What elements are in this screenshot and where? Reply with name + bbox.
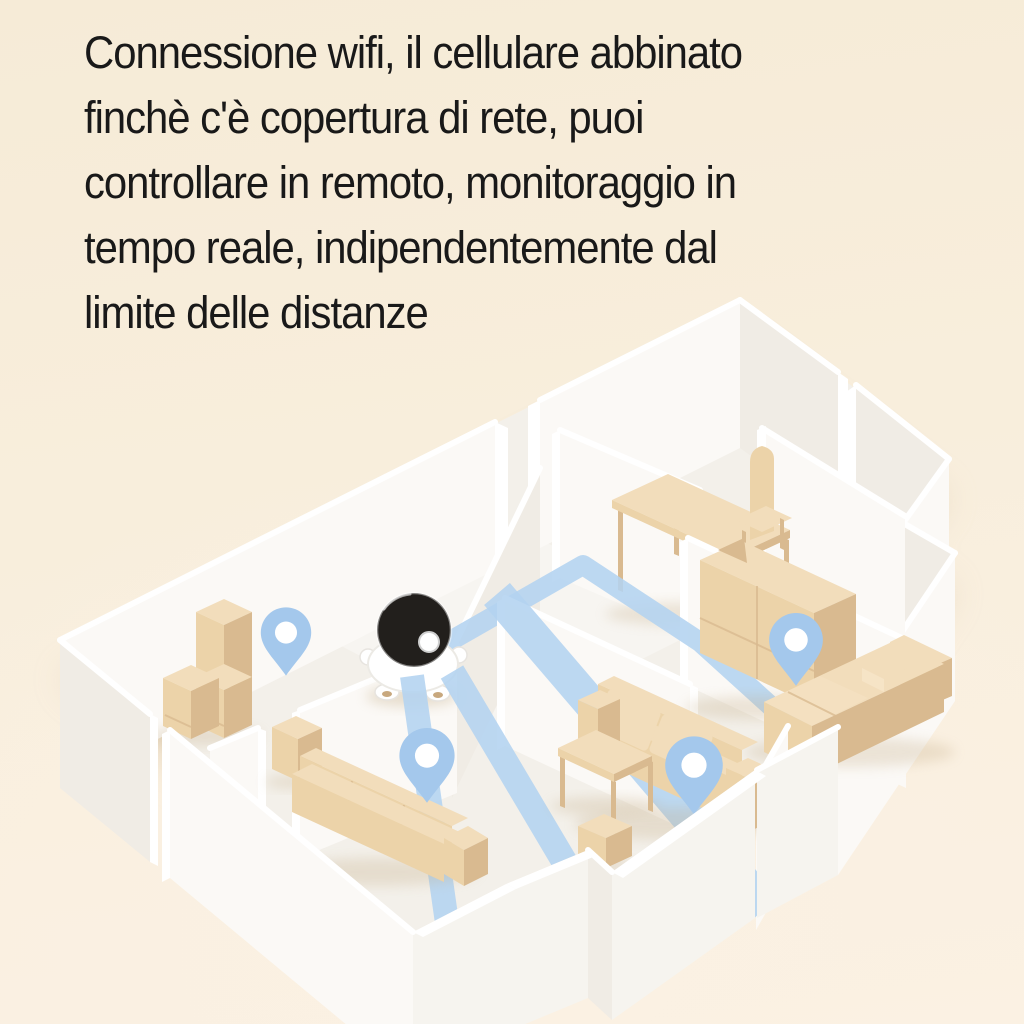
- product-marketing-image: Connessione wifi, il cellulare abbinato …: [0, 0, 1024, 1024]
- camera-lens: [419, 632, 439, 652]
- floorplan-illustration: [0, 0, 1024, 1024]
